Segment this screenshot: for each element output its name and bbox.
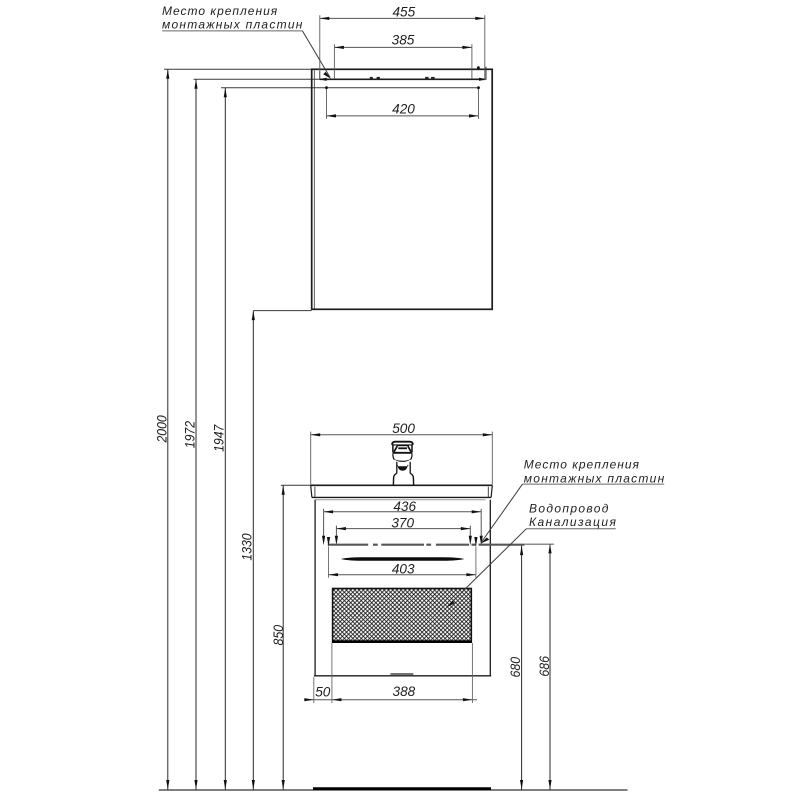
svg-text:1947: 1947 [212, 424, 228, 452]
svg-text:388: 388 [393, 684, 416, 699]
svg-text:1330: 1330 [240, 533, 256, 560]
svg-text:1972: 1972 [182, 421, 198, 448]
svg-text:420: 420 [392, 101, 415, 116]
svg-text:385: 385 [392, 33, 415, 48]
svg-text:монтажных пластин: монтажных пластин [162, 17, 304, 31]
svg-text:500: 500 [392, 421, 415, 436]
svg-text:850: 850 [271, 625, 287, 646]
svg-text:50: 50 [315, 684, 331, 699]
svg-text:403: 403 [392, 562, 415, 577]
svg-text:2000: 2000 [155, 415, 171, 443]
svg-text:686: 686 [537, 656, 553, 677]
svg-text:436: 436 [393, 499, 416, 514]
svg-text:Канализация: Канализация [529, 515, 617, 529]
svg-text:455: 455 [392, 5, 415, 20]
svg-text:монтажных пластин: монтажных пластин [524, 471, 666, 485]
svg-text:370: 370 [391, 516, 414, 531]
svg-text:Водопровод: Водопровод [529, 502, 610, 516]
svg-text:Место крепления: Место крепления [524, 457, 640, 471]
svg-text:680: 680 [508, 657, 524, 678]
svg-text:Место крепления: Место крепления [162, 4, 278, 18]
